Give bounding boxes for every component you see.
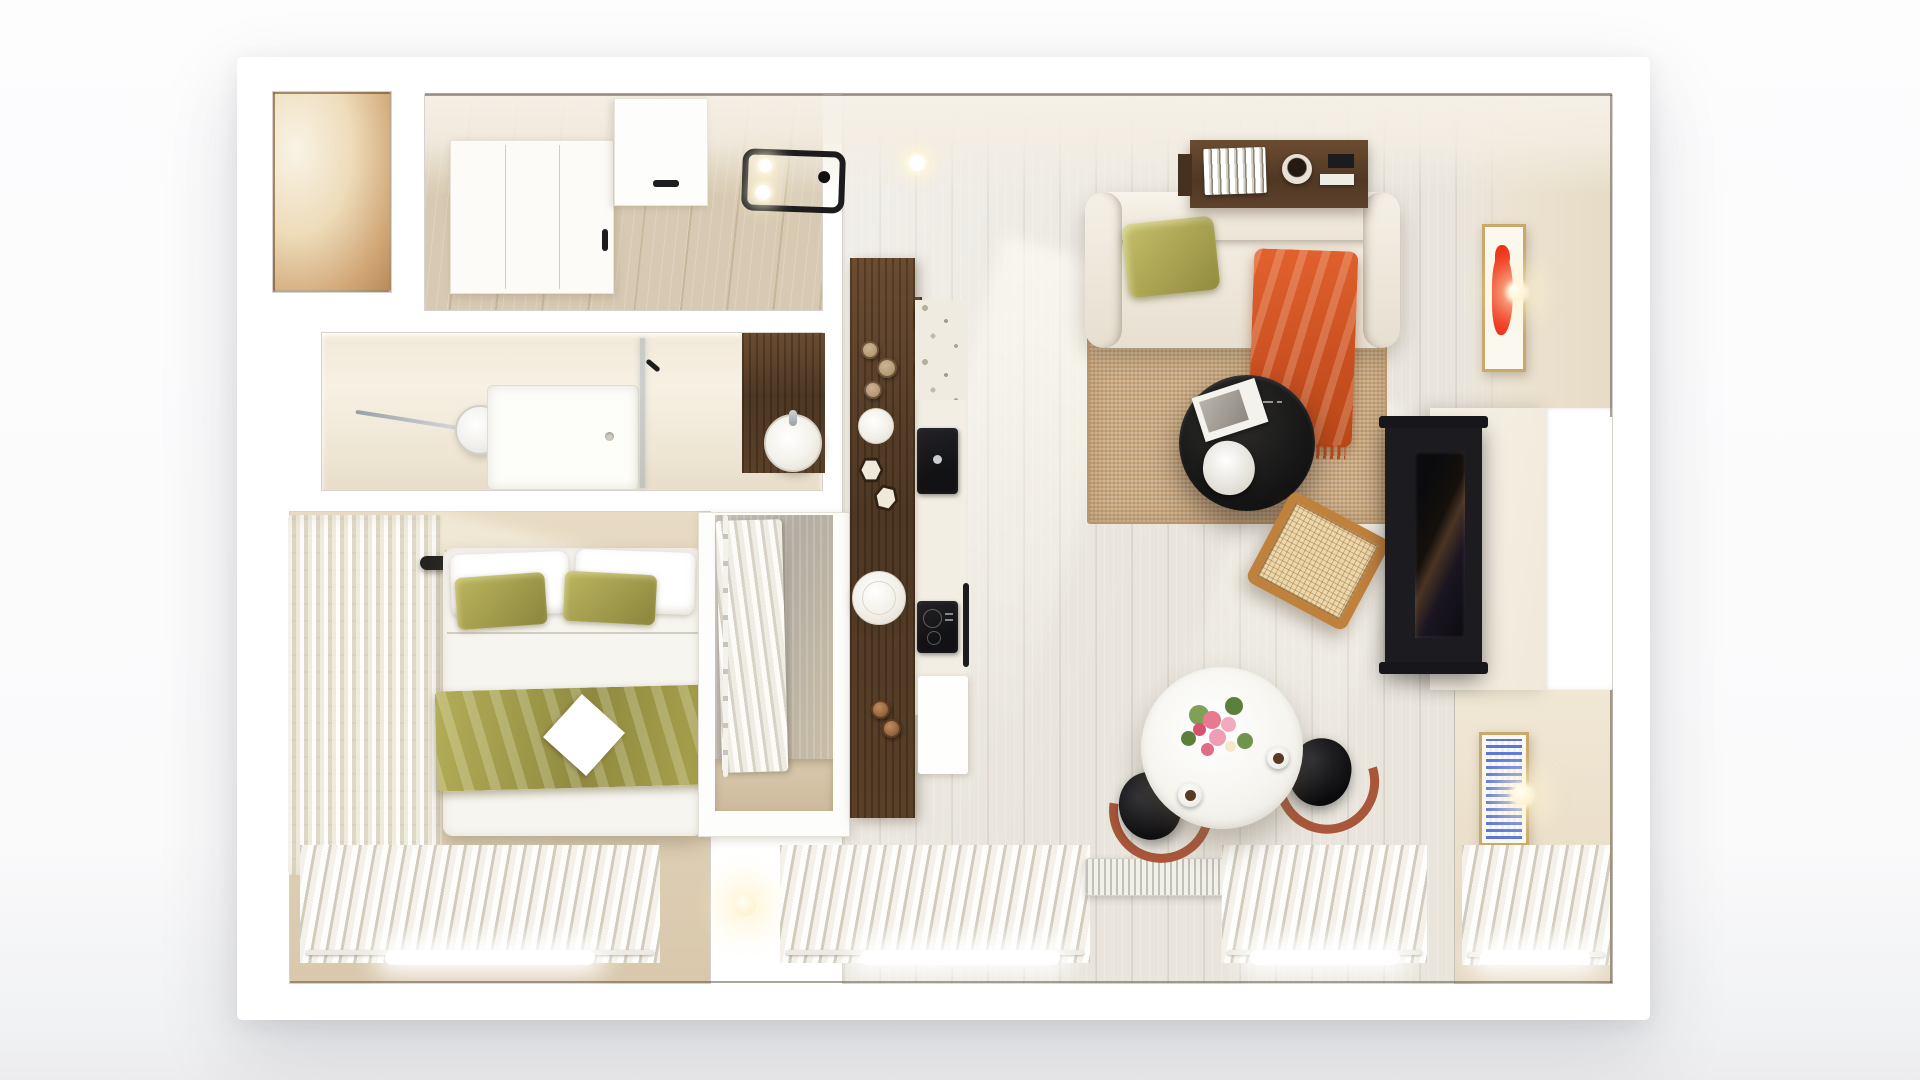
closet-rail <box>723 515 728 777</box>
jar-icon <box>877 358 897 378</box>
sofa-arm <box>1085 192 1122 348</box>
console-step <box>1178 154 1192 196</box>
cooktop <box>917 601 958 653</box>
light-bulb-icon <box>758 159 771 172</box>
wall-edge <box>1610 690 1612 983</box>
wardrobe-seam <box>559 145 560 289</box>
kitchen-island <box>850 258 915 818</box>
pendant-lamp <box>858 408 894 444</box>
shower-drain-icon <box>605 432 614 441</box>
faucet-icon <box>789 410 797 426</box>
entry-door <box>614 98 708 206</box>
terrazzo-counter <box>915 300 968 400</box>
burner-icon <box>923 609 942 628</box>
wall-edge <box>290 981 1612 983</box>
door-handle-icon <box>653 180 679 187</box>
faucet-knob-icon <box>871 700 890 719</box>
bowl-icon <box>1282 154 1312 184</box>
entry-niche <box>273 92 391 292</box>
window-light <box>860 950 1060 965</box>
control-marks <box>945 613 953 615</box>
kitchen-sink <box>917 428 958 494</box>
dining-table <box>1141 667 1303 829</box>
wardrobe-handle <box>602 229 608 251</box>
tv-mount <box>1379 416 1488 428</box>
plate-ring <box>862 581 896 615</box>
burner-icon <box>927 631 941 645</box>
control-marks <box>945 619 953 621</box>
light-knob-icon <box>818 171 830 183</box>
curtain-pleats <box>1222 845 1427 963</box>
book-row <box>1203 147 1267 195</box>
closet-interior <box>715 515 833 811</box>
wall-console <box>1190 140 1368 208</box>
shower-glass <box>640 338 645 488</box>
velvet-pillow <box>563 571 657 626</box>
bouquet-leaf <box>1225 697 1243 715</box>
living-right-wall <box>1455 95 1612 417</box>
bouquet-flower <box>1193 723 1206 736</box>
bouquet-leaf <box>1237 733 1253 749</box>
console-items <box>1320 174 1354 185</box>
light-bulb-icon <box>755 185 771 201</box>
render-canvas <box>0 0 1920 1080</box>
table-marks <box>1263 401 1273 403</box>
hall-ceiling-light <box>741 148 846 214</box>
bouquet-flower <box>1203 711 1221 729</box>
sofa-arm <box>1363 192 1400 348</box>
radiator <box>1085 858 1227 896</box>
wall-edge <box>425 93 1612 96</box>
hall-wardrobe <box>450 140 614 294</box>
window-light <box>1250 950 1400 965</box>
coffee-cup <box>1178 783 1202 807</box>
jar-icon <box>861 341 879 359</box>
wall-edge <box>1610 95 1612 417</box>
coffee-cup <box>1267 747 1289 769</box>
tv <box>1385 420 1482 670</box>
shower-tray <box>487 385 639 490</box>
curtain-pleats <box>780 845 1090 963</box>
window-light <box>1480 950 1590 965</box>
wardrobe-seam <box>505 145 506 289</box>
console-items <box>1328 154 1354 168</box>
apartment-plan <box>237 57 1650 1020</box>
faucet-icon <box>933 455 942 464</box>
living-curtain <box>1222 845 1427 963</box>
faucet-knob-icon <box>882 719 901 738</box>
wall-block <box>1545 408 1612 690</box>
wall-sconce <box>1512 785 1532 805</box>
alcove-curtain <box>1462 845 1610 965</box>
sofa-pillow <box>1121 215 1220 298</box>
pendant-lamp <box>852 571 906 625</box>
velvet-pillow <box>454 572 547 630</box>
coffee-table <box>1179 375 1315 511</box>
tv-screen <box>1415 452 1465 638</box>
island-bench <box>918 676 968 774</box>
wall-sconce <box>1508 283 1526 301</box>
jar-icon <box>864 381 882 399</box>
vessel-sink <box>764 414 822 472</box>
cabinet-handle <box>963 583 969 667</box>
sculpture <box>1199 438 1258 499</box>
curtain-pleats <box>300 845 660 963</box>
sphere-floor-lamp <box>734 894 756 916</box>
closet <box>698 512 850 837</box>
duvet-fold <box>447 632 699 634</box>
bouquet-flower <box>1201 743 1214 756</box>
sofa <box>1085 192 1400 348</box>
table-marks <box>1277 401 1282 403</box>
kitchen-curtain <box>780 845 1090 963</box>
window-light <box>385 950 595 965</box>
bedroom-curtain <box>300 845 660 963</box>
knit-runner-rug <box>288 515 442 875</box>
bouquet-flower <box>1221 717 1236 732</box>
bed <box>443 548 703 836</box>
tv-mount <box>1379 662 1488 674</box>
ceiling-bulb <box>909 155 925 171</box>
curtain-pleats <box>1462 845 1610 965</box>
bouquet-flower <box>1225 741 1236 752</box>
